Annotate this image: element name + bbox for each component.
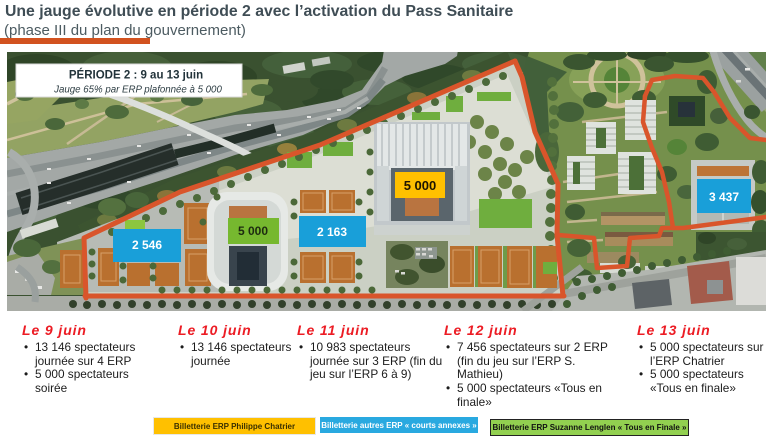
svg-text:Jauge 65% par ERP plafonnée à: Jauge 65% par ERP plafonnée à 5 000 [53, 85, 222, 96]
svg-text:5 000: 5 000 [238, 224, 268, 238]
svg-text:5 000: 5 000 [404, 178, 437, 193]
svg-text:PÉRIODE 2 : 9 au 13 juin: PÉRIODE 2 : 9 au 13 juin [69, 69, 203, 82]
svg-text:2 163: 2 163 [317, 225, 347, 239]
svg-text:3 437: 3 437 [709, 190, 739, 204]
svg-text:2 546: 2 546 [132, 238, 162, 252]
